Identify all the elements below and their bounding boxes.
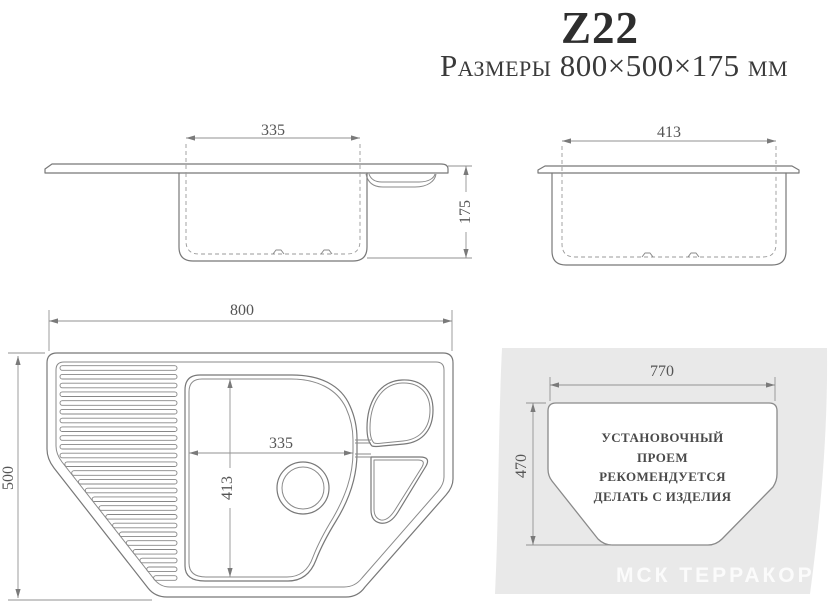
model-title: Z22 <box>380 2 820 54</box>
dim-label-overall-width: 800 <box>212 303 272 319</box>
top-view-drawing <box>8 310 453 600</box>
dim-label-bowl-width-front: 335 <box>243 123 303 139</box>
rim-profile <box>538 166 799 173</box>
bowl-inner-hidden-line <box>186 173 360 254</box>
side-view-profile-drawing <box>538 141 799 265</box>
installation-note-line: ПРОЕМ <box>548 448 777 468</box>
installation-note: УСТАНОВОЧНЫЙ ПРОЕМ РЕКОМЕНДУЕТСЯ ДЕЛАТЬ … <box>548 428 777 506</box>
installation-note-line: ДЕЛАТЬ С ИЗДЕЛИЯ <box>548 487 777 507</box>
wing-bowl-outline <box>355 380 433 523</box>
bowl-outer-wall <box>552 173 786 265</box>
bowl-outer-wall <box>179 173 367 261</box>
brand-watermark: МСК ТЕРРАКОРД <box>616 564 831 588</box>
dim-label-bowl-width-profile: 413 <box>639 125 699 141</box>
dim-label-bowl-depth-top: 413 <box>220 468 236 508</box>
drawing-canvas <box>0 0 838 612</box>
installation-note-line: РЕКОМЕНДУЕТСЯ <box>548 467 777 487</box>
main-bowl-outline <box>185 375 357 581</box>
drain-boss-marks <box>642 253 699 257</box>
dim-label-bowl-width-top: 335 <box>251 436 311 452</box>
drainboard-ridges <box>60 366 177 581</box>
technical-drawing-sheet: Z22 Размеры 800×500×175 мм 335 175 413 8… <box>0 0 838 612</box>
wing-bowl-profile-outer <box>366 174 436 187</box>
dimensions-subtitle: Размеры 800×500×175 мм <box>390 48 838 84</box>
rim-inner-edge <box>56 362 444 587</box>
side-view-front-drawing <box>45 138 472 261</box>
drain-boss-marks <box>273 250 332 254</box>
dim-label-depth-front: 175 <box>458 192 474 232</box>
rim-profile <box>45 164 448 173</box>
dim-label-cutout-width: 770 <box>632 364 692 380</box>
dim-label-overall-depth: 500 <box>1 458 17 498</box>
wing-bowl-profile-inner <box>369 174 435 182</box>
drain-circle <box>277 462 329 514</box>
installation-note-line: УСТАНОВОЧНЫЙ <box>548 428 777 448</box>
bowl-inner-hidden-line <box>562 173 776 257</box>
dim-label-cutout-depth: 470 <box>514 446 530 486</box>
